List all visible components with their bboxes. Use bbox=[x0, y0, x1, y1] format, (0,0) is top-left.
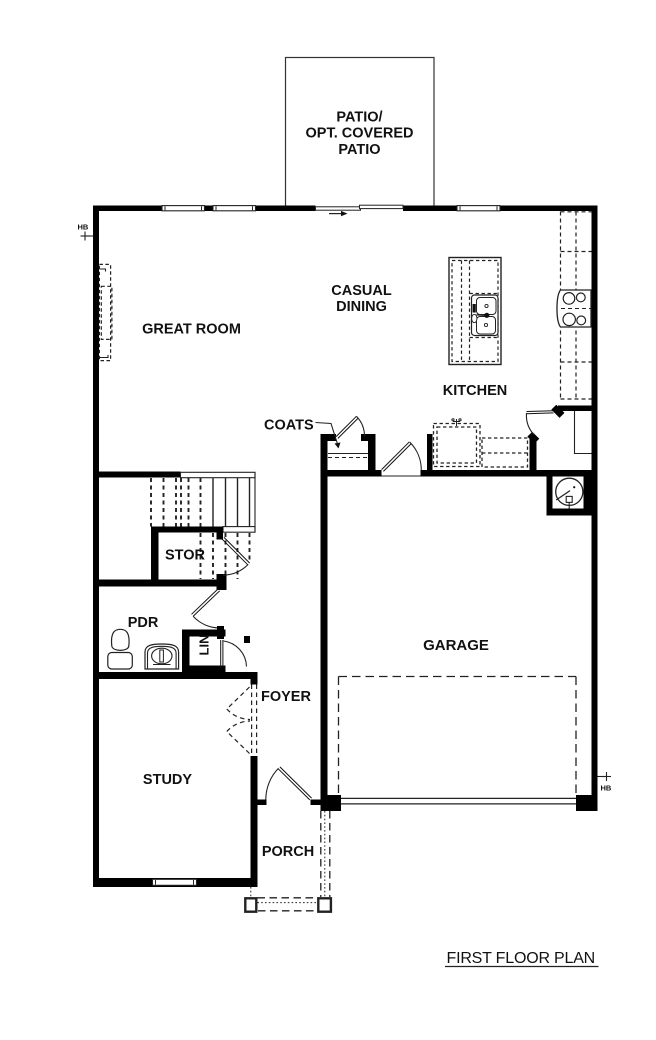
svg-text:FIRST FLOOR PLAN: FIRST FLOOR PLAN bbox=[447, 950, 596, 967]
svg-text:LIN: LIN bbox=[197, 635, 212, 656]
svg-text:PATIO/: PATIO/ bbox=[336, 110, 382, 126]
svg-text:STUDY: STUDY bbox=[143, 772, 192, 788]
svg-text:PORCH: PORCH bbox=[262, 844, 314, 860]
svg-text:HB: HB bbox=[601, 784, 612, 793]
svg-text:HB: HB bbox=[78, 223, 89, 232]
svg-text:KITCHEN: KITCHEN bbox=[443, 383, 507, 399]
svg-text:STOR: STOR bbox=[165, 548, 206, 564]
svg-text:DINING: DINING bbox=[336, 299, 387, 315]
svg-text:FOYER: FOYER bbox=[261, 689, 311, 705]
svg-text:GARAGE: GARAGE bbox=[423, 637, 489, 654]
svg-text:OPT. COVERED: OPT. COVERED bbox=[306, 126, 414, 142]
svg-text:PATIO: PATIO bbox=[338, 142, 380, 158]
svg-text:PDR: PDR bbox=[128, 615, 159, 631]
svg-text:COATS: COATS bbox=[264, 418, 314, 434]
svg-text:GREAT ROOM: GREAT ROOM bbox=[142, 322, 241, 338]
svg-text:CASUAL: CASUAL bbox=[331, 283, 392, 299]
